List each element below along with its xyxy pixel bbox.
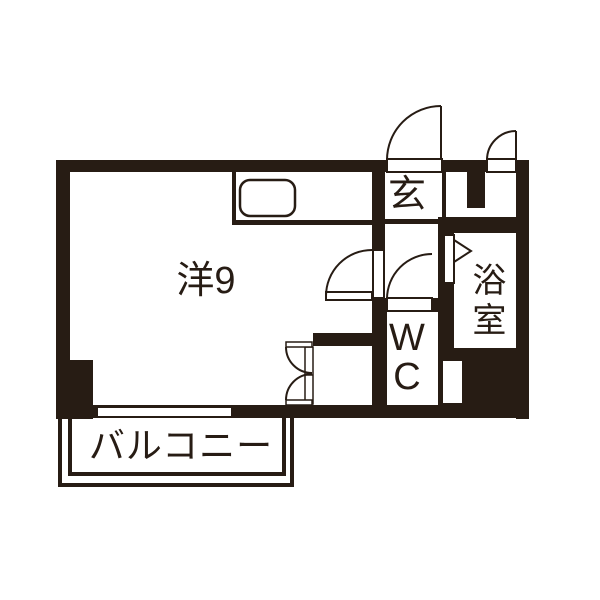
- wall-top: [56, 160, 529, 172]
- room-label-bath: 浴室: [467, 262, 503, 342]
- entrance-door-swing-arc: [387, 106, 441, 160]
- living-door-swing-arc: [326, 250, 372, 296]
- room-label-living: 洋9: [176, 262, 235, 302]
- bath-door-marker: [454, 240, 471, 262]
- service-door-swing-arc: [487, 131, 516, 160]
- floorplan: 洋9 玄 WC 浴室 バルコニー: [0, 0, 600, 600]
- room-label-balcony: バルコニー: [89, 427, 273, 465]
- counter-bottom-edge: [232, 220, 372, 225]
- service-door-leaf: [487, 159, 516, 172]
- bath-door-slot: [444, 235, 454, 283]
- wc-door-swing-arc: [387, 254, 432, 299]
- wc-door-leaf: [387, 298, 432, 311]
- room-label-wc: WC: [386, 317, 426, 395]
- living-door-gap-leaf: [373, 250, 384, 298]
- balcony-window: [97, 407, 232, 417]
- closet-door-leaf-top: [286, 342, 312, 347]
- counter-left-edge: [232, 172, 236, 223]
- kitchen-sink: [240, 180, 295, 216]
- wall-entrance-divider: [442, 172, 446, 219]
- entrance-step-line: [384, 219, 442, 224]
- entrance-door-leaf: [387, 159, 442, 172]
- wall-closet-top: [313, 333, 372, 346]
- wall-living-hall-upper: [372, 172, 385, 250]
- wall-pillar: [467, 172, 485, 208]
- wall-wc-door-stub: [432, 298, 454, 312]
- floorplan-drawing: [0, 0, 600, 600]
- utility-recess: [442, 360, 463, 404]
- wall-living-hall-lower: [372, 298, 387, 405]
- wall-right: [516, 160, 529, 419]
- room-label-entrance: 玄: [388, 176, 426, 216]
- living-door-leaf: [326, 292, 372, 300]
- closet-door-leaf-bottom: [286, 400, 312, 405]
